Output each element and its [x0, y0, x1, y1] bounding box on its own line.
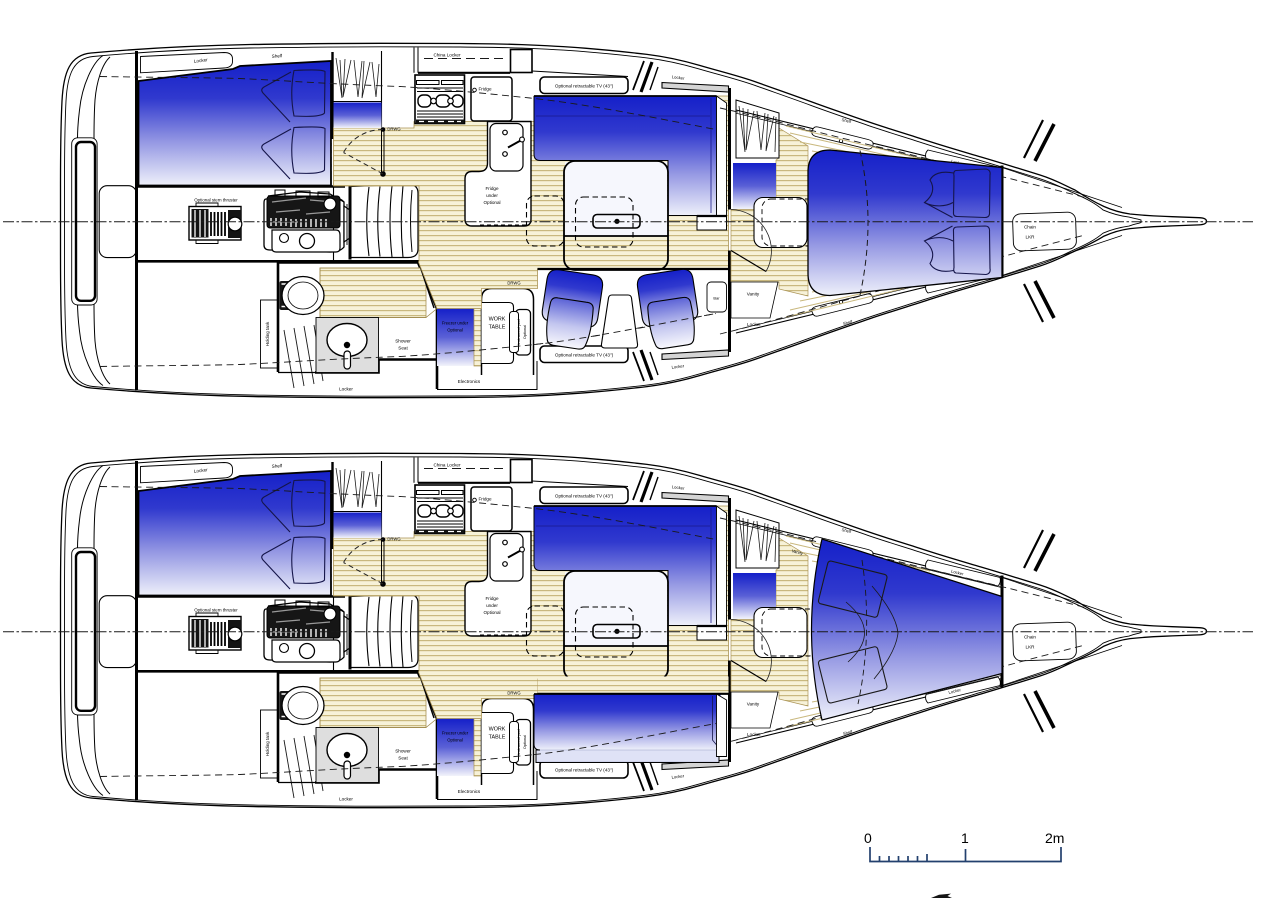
svg-text:Holding tank: Holding tank: [265, 321, 270, 346]
svg-text:Fridge: Fridge: [485, 186, 498, 191]
svg-text:Optional retractable TV (43"): Optional retractable TV (43"): [555, 768, 614, 773]
svg-text:Seat: Seat: [398, 346, 408, 351]
svg-text:Vanity: Vanity: [747, 292, 760, 297]
svg-text:DRWG: DRWG: [507, 281, 520, 286]
svg-text:Instrument pod: Instrument pod: [517, 319, 521, 344]
svg-text:Electronics: Electronics: [458, 379, 481, 384]
svg-text:China Locker: China Locker: [433, 53, 461, 58]
svg-text:Locker: Locker: [339, 387, 353, 392]
svg-text:LKR: LKR: [1026, 235, 1036, 240]
svg-text:Freezer under: Freezer under: [442, 321, 469, 326]
svg-text:2m: 2m: [1045, 830, 1064, 846]
svg-text:DRWG: DRWG: [387, 127, 400, 132]
svg-text:Optional retractable TV (43"): Optional retractable TV (43"): [555, 352, 614, 357]
svg-text:Locker: Locker: [747, 322, 761, 327]
svg-text:1: 1: [961, 830, 969, 846]
svg-text:Optional: Optional: [447, 328, 463, 333]
svg-text:Chain: Chain: [1024, 225, 1036, 230]
svg-text:Shelf: Shelf: [271, 53, 283, 59]
svg-text:Fridge: Fridge: [478, 87, 491, 92]
svg-text:TABLE: TABLE: [489, 325, 506, 331]
svg-text:Optional: Optional: [523, 325, 527, 339]
svg-text:Shower: Shower: [395, 339, 411, 344]
svg-text:Optional retractable TV (43"): Optional retractable TV (43"): [555, 83, 614, 88]
svg-text:Optional: Optional: [483, 200, 500, 205]
svg-text:Optional stern thruster: Optional stern thruster: [194, 198, 238, 203]
svg-text:0: 0: [864, 830, 872, 846]
svg-text:WORK: WORK: [489, 317, 506, 323]
svg-text:Bar: Bar: [713, 296, 720, 301]
svg-text:under: under: [486, 193, 498, 198]
